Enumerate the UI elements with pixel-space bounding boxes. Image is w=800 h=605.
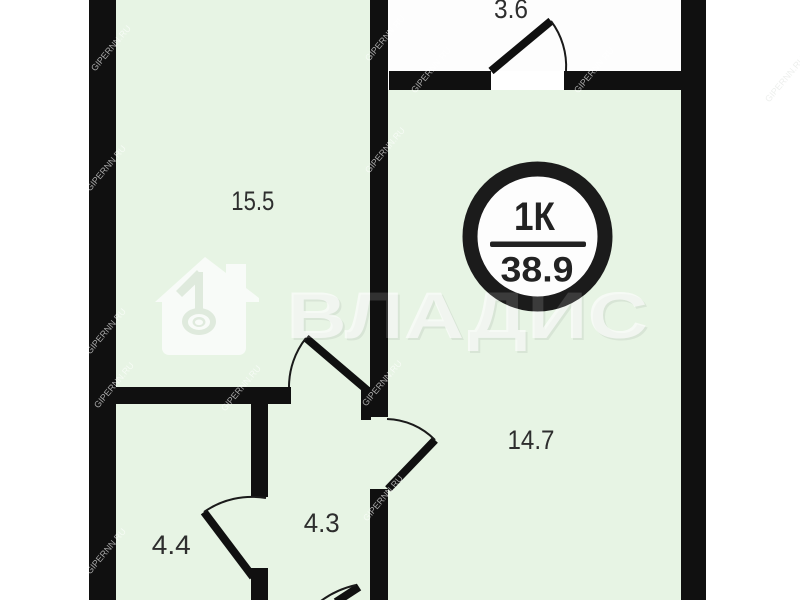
svg-text:4.3: 4.3 <box>304 508 340 538</box>
svg-text:14.7: 14.7 <box>508 425 555 455</box>
svg-text:ВЛАДИС: ВЛАДИС <box>286 278 648 352</box>
svg-text:4.4: 4.4 <box>152 530 191 560</box>
svg-text:1К: 1К <box>514 195 556 239</box>
svg-text:3.6: 3.6 <box>494 0 528 24</box>
svg-text:15.5: 15.5 <box>231 186 274 216</box>
